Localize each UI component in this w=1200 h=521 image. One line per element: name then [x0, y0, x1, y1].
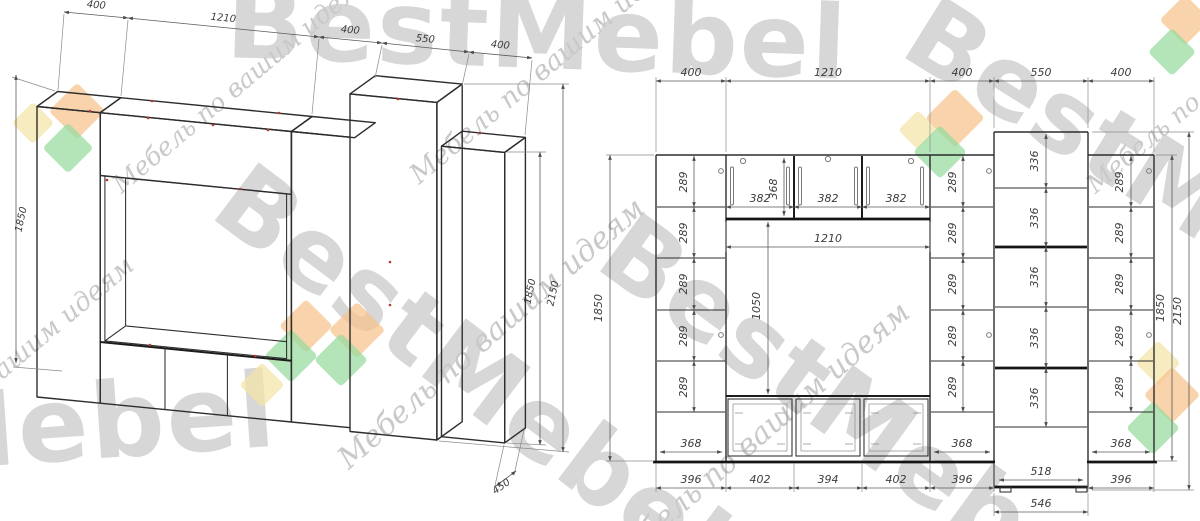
dim-cell: 289 — [1113, 274, 1126, 295]
dim-cell: 289 — [1113, 223, 1126, 244]
door-handle-icon — [908, 158, 913, 163]
dim-cell: 289 — [946, 274, 959, 295]
iso-dim-top-1210: 1210 — [210, 12, 236, 25]
dim-shelf-total: 1210 — [814, 232, 842, 245]
dim-inner-width: 368 — [952, 437, 973, 450]
iso-right-column-side — [505, 137, 526, 443]
mid-column-dims: 289 289 289 289 289 368 396 — [930, 156, 994, 488]
iso-tall-cabinet-top — [350, 76, 462, 103]
drawing-canvas: 400 1210 400 550 400 1850 1850 2150 — [0, 0, 1200, 521]
iso-tall-cabinet-front — [350, 94, 437, 440]
tall-column-shelves — [995, 188, 1087, 427]
dim-inner-width: 368 — [1111, 437, 1132, 450]
dim-top-400c: 400 — [1111, 66, 1132, 79]
dim-drawer: 402 — [886, 473, 907, 486]
drawer-boxes — [728, 399, 928, 456]
door-handle-icon — [987, 169, 992, 174]
front-dimensions: 400 1210 400 550 400 1850 1850 2150 — [592, 66, 1194, 516]
dim-cell: 289 — [677, 172, 690, 193]
dim-drawer: 402 — [750, 473, 771, 486]
dim-height-right: 1850 — [1154, 294, 1167, 322]
dim-compartment: 382 — [886, 192, 907, 205]
iso-drawer-band-top — [100, 342, 291, 361]
dim-cell: 336 — [1028, 388, 1041, 409]
top-shelf-dims: 382 382 382 368 1210 — [726, 158, 930, 252]
dim-cell: 289 — [677, 377, 690, 398]
iso-right-column-top — [442, 131, 526, 152]
iso-right-column-front — [442, 146, 505, 443]
iso-tv-niche-opening — [105, 176, 287, 359]
dim-cell: 336 — [1028, 151, 1041, 172]
dim-outer-width: 396 — [1111, 473, 1132, 486]
front-view: 400 1210 400 550 400 1850 1850 2150 — [592, 66, 1194, 516]
dim-outer-width: 546 — [1031, 497, 1052, 510]
dim-shelf-height: 368 — [767, 179, 780, 200]
iso-dim-depth: 450 — [491, 477, 513, 497]
dim-inner-width: 518 — [1031, 465, 1052, 478]
door-handle-icon — [719, 169, 724, 174]
iso-dim-top-400a: 400 — [86, 0, 106, 12]
front-structure — [653, 132, 1157, 492]
mid-column-shelves — [931, 207, 993, 412]
dim-height-left: 1850 — [592, 294, 605, 322]
dim-cell: 336 — [1028, 208, 1041, 229]
door-handle-icon — [825, 156, 830, 161]
dim-outer-width: 396 — [681, 473, 702, 486]
iso-dim-top-400c: 400 — [490, 39, 510, 52]
dim-outer-width: 396 — [952, 473, 973, 486]
dim-top-400a: 400 — [681, 66, 702, 79]
iso-top-shelf-front — [100, 113, 291, 195]
iso-tall-cabinet-side — [437, 84, 462, 440]
technical-drawing-page: BestMebel BestMebel BestMebel BestMebel … — [0, 0, 1200, 521]
dim-drawer: 394 — [818, 473, 839, 486]
dim-cell: 289 — [946, 172, 959, 193]
iso-view: 400 1210 400 550 400 1850 1850 2150 — [12, 0, 569, 497]
iso-dim-height-tall: 2150 — [546, 280, 562, 307]
dim-niche-height: 1050 — [750, 292, 763, 320]
dim-cell: 289 — [1113, 172, 1126, 193]
left-column-shelves — [657, 207, 725, 412]
dim-cell: 289 — [677, 326, 690, 347]
iso-dim-top-550: 550 — [415, 33, 435, 46]
dim-cell: 289 — [946, 326, 959, 347]
iso-dim-top-400b: 400 — [340, 24, 360, 37]
dim-cell: 289 — [946, 377, 959, 398]
dim-cell: 289 — [1113, 326, 1126, 347]
dim-height-tall: 2150 — [1171, 297, 1184, 325]
door-handle-icon — [719, 333, 724, 338]
dim-cell: 289 — [946, 223, 959, 244]
dim-inner-width: 368 — [681, 437, 702, 450]
dim-compartment: 382 — [818, 192, 839, 205]
iso-mid-column-front — [291, 132, 350, 428]
iso-left-column-top — [37, 92, 121, 113]
dim-cell: 289 — [677, 274, 690, 295]
dim-cell: 336 — [1028, 267, 1041, 288]
door-handle-icon — [1147, 169, 1152, 174]
door-handle-icon — [740, 158, 745, 163]
iso-tv-niche-inner — [105, 161, 307, 359]
dim-top-400b: 400 — [952, 66, 973, 79]
tall-column-dims: 336 336 336 336 336 518 546 — [994, 134, 1088, 512]
assembly-dots — [89, 98, 482, 358]
iso-mid-column-top — [291, 117, 375, 138]
iso-center-top — [100, 98, 312, 132]
dim-cell: 336 — [1028, 328, 1041, 349]
left-column-dims: 289 289 289 289 289 368 396 — [656, 156, 726, 488]
right-column-dims: 289 289 289 289 289 368 396 — [1088, 156, 1154, 488]
dim-cell: 289 — [1113, 377, 1126, 398]
door-handle-icon — [987, 333, 992, 338]
dim-top-1210: 1210 — [814, 66, 842, 79]
drawer-dims: 402 394 402 — [656, 463, 1154, 516]
dim-top-550: 550 — [1031, 66, 1052, 79]
dim-cell: 289 — [677, 223, 690, 244]
door-handle-icon — [1147, 333, 1152, 338]
iso-left-column-front — [37, 107, 100, 404]
